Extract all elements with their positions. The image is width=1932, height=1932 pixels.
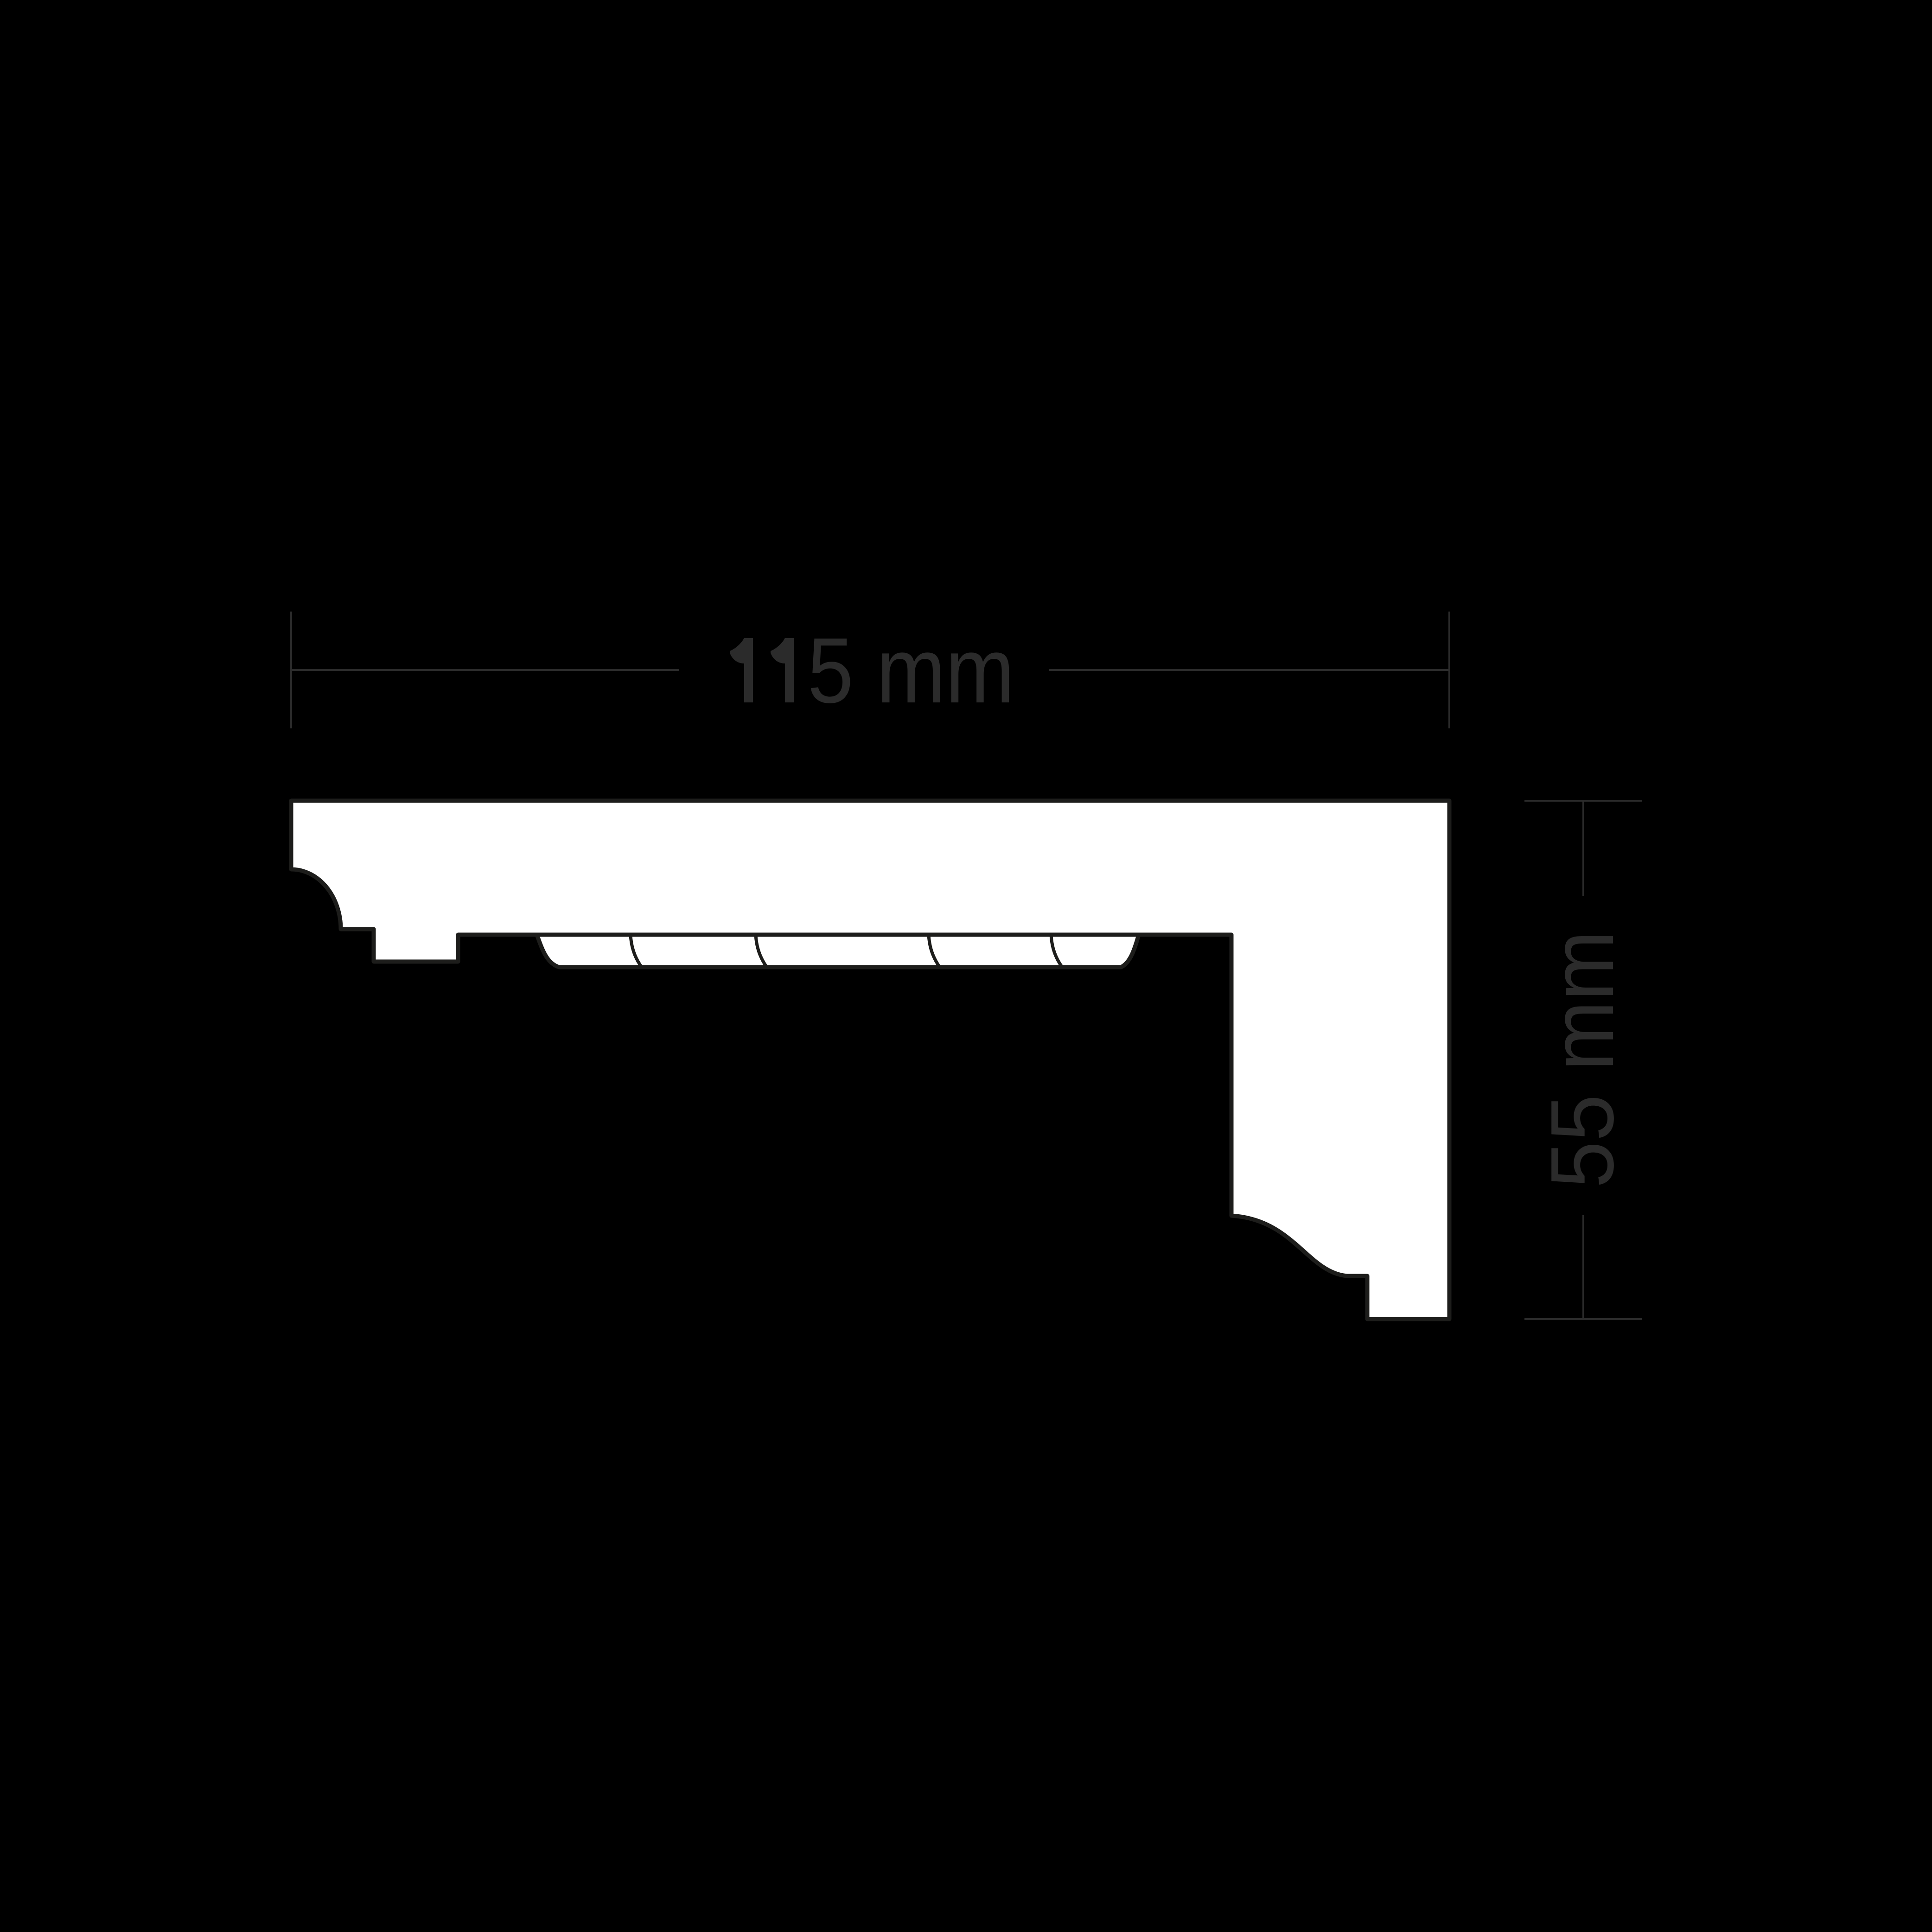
svg-text:5 mm: 5 mm [808, 619, 1014, 723]
svg-text:55 mm: 55 mm [1532, 931, 1632, 1188]
